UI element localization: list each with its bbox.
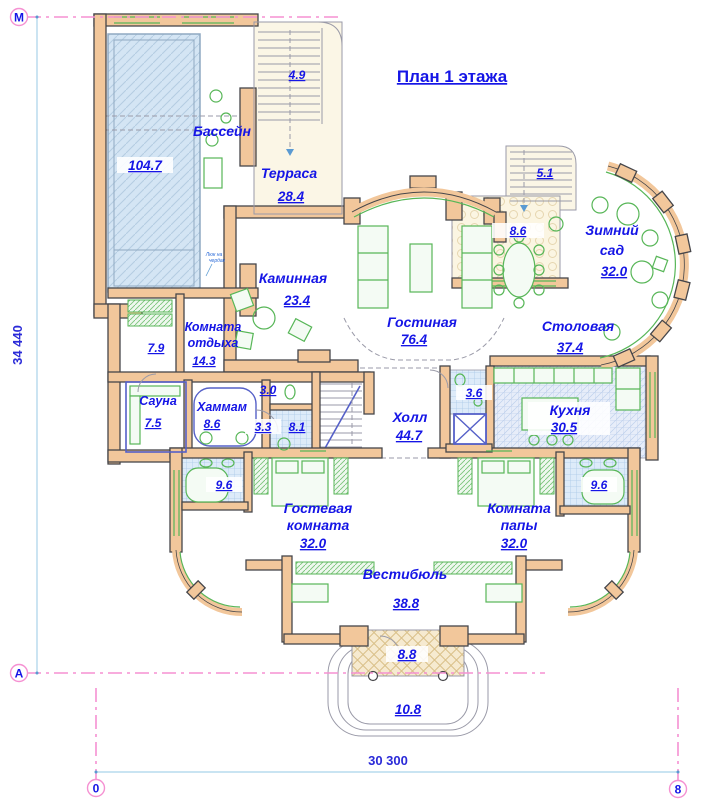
room-area-living: 76.4 — [401, 332, 428, 347]
room-area-porch: 8.8 — [398, 647, 417, 662]
room-label-winter-garden-1: Зимний — [585, 222, 639, 238]
room-area-vestibule: 38.8 — [393, 596, 420, 611]
room-area-hall-bath: 3.6 — [466, 386, 483, 400]
room-label-dining: Столовая — [542, 318, 614, 334]
dimension-horizontal: 30 300 — [368, 753, 408, 768]
room-label-guest-2: комната — [287, 517, 350, 533]
axis-marker-A-label: А — [15, 667, 24, 681]
room-label-guest-1: Гостевая — [284, 500, 353, 516]
room-area-hammam: 8.6 — [204, 417, 221, 431]
axis-marker-M-label: М — [14, 11, 24, 25]
room-area-top-stairs: 4.9 — [288, 68, 306, 82]
room-label-lounge-1: Комната — [185, 320, 242, 334]
room-area-guest: 32.0 — [300, 536, 327, 551]
room-label-dad-1: Комната — [487, 500, 551, 516]
room-label-vestibule: Вестибюль — [363, 566, 447, 582]
room-area-hall: 44.7 — [395, 428, 424, 443]
floor-plan-drawing: М А 0 8 34 440 30 300 План 1 этажа Бассе… — [0, 0, 705, 800]
room-label-terrace: Терраса — [261, 165, 317, 181]
room-area-entry-steps: 10.8 — [395, 702, 422, 717]
room-label-winter-garden-2: сад — [600, 242, 625, 258]
guest-bay-window — [176, 550, 242, 612]
room-area-shower: 3.3 — [255, 420, 272, 434]
dad-bay-window — [568, 550, 634, 612]
note-leader-line — [206, 264, 212, 276]
room-area-sauna: 7.5 — [145, 416, 162, 430]
room-area-right-stairs: 5.1 — [537, 166, 554, 180]
room-area-dad-bath: 9.6 — [591, 478, 608, 492]
room-label-hammam: Хаммам — [196, 400, 247, 414]
room-area-closet: 7.9 — [148, 341, 165, 355]
room-label-kitchen: Кухня — [550, 402, 591, 418]
room-area-winter-garden: 32.0 — [601, 264, 628, 279]
axis-marker-0-label: 0 — [93, 782, 100, 796]
floor-plan-page: М А 0 8 34 440 30 300 План 1 этажа Бассе… — [0, 0, 705, 800]
hall-stairs — [320, 384, 362, 450]
room-area-lounge: 14.3 — [192, 354, 216, 368]
room-label-sauna: Сауна — [139, 394, 177, 408]
room-area-terrace: 28.4 — [277, 189, 305, 204]
room-label-pool: Бассейн — [193, 123, 252, 139]
room-area-right-terrace: 8.6 — [510, 224, 527, 238]
room-area-hall-stairs: 8.1 — [289, 420, 306, 434]
page-title: План 1 этажа — [397, 67, 508, 86]
room-label-fireplace: Каминная — [259, 270, 327, 286]
room-area-wc: 3.0 — [260, 383, 277, 397]
attic-hatch-note-2: чердак — [209, 258, 226, 264]
room-area-dad: 32.0 — [501, 536, 528, 551]
room-label-hall: Холл — [392, 409, 428, 425]
terrace-floor — [254, 22, 342, 214]
dimension-vertical: 34 440 — [10, 325, 25, 365]
room-label-lounge-2: отдыха — [188, 336, 239, 350]
room-area-dining: 37.4 — [557, 340, 584, 355]
room-area-fireplace: 23.4 — [283, 293, 311, 308]
room-area-pool: 104.7 — [128, 158, 163, 173]
axis-marker-8-label: 8 — [675, 783, 682, 797]
room-area-kitchen: 30.5 — [551, 420, 578, 435]
elevator — [454, 414, 486, 444]
room-label-dad-2: папы — [501, 517, 538, 533]
room-label-living: Гостиная — [387, 314, 457, 330]
room-area-guest-bath: 9.6 — [216, 478, 233, 492]
